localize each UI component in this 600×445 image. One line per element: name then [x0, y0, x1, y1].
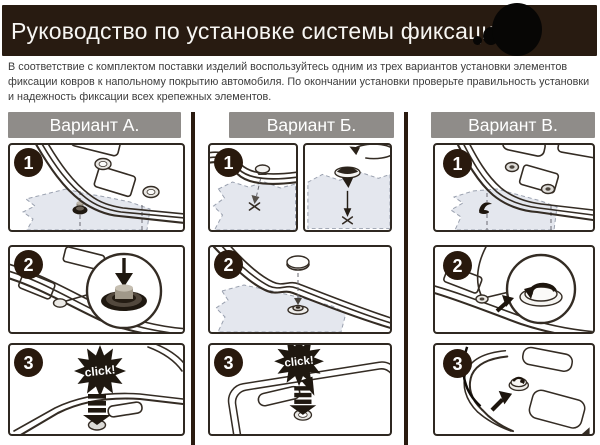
cord-line	[478, 247, 487, 295]
screw-fastener	[256, 165, 270, 175]
variant-a-header: Вариант А.	[8, 112, 181, 138]
panel-c-step-3: 3	[433, 343, 595, 436]
step-badge: 2	[14, 250, 43, 279]
mat-eyelet	[54, 299, 67, 307]
step-badge: 3	[443, 349, 472, 378]
header-bar: Руководство по установке системы фиксаци…	[2, 5, 597, 56]
installed-stud	[288, 305, 308, 314]
corner-mark	[582, 427, 590, 434]
panel-b-step-1-left: 1	[208, 143, 298, 232]
logo-blob	[492, 3, 542, 56]
panel-a-step-3: click! 3	[8, 343, 185, 436]
panel-b-step-3: click! 3	[208, 343, 392, 436]
magnifier-circle	[87, 254, 161, 328]
variant-b-header: Вариант Б.	[229, 112, 394, 138]
page-title: Руководство по установке системы фиксаци…	[11, 5, 508, 56]
step-badge: 1	[214, 148, 243, 177]
panel-c-step-1: 1	[433, 143, 595, 232]
pointer-arrow-icon	[492, 391, 512, 410]
panel-b-step-1-right	[303, 143, 392, 232]
step-badge: 3	[14, 348, 43, 377]
step-badge: 2	[443, 251, 472, 280]
step-badge: 3	[214, 348, 243, 377]
illustration-screw-in	[305, 145, 390, 230]
variant-c-header: Вариант В.	[431, 112, 595, 138]
hook-fastener	[509, 378, 528, 391]
panel-a-step-1: 1	[8, 143, 185, 232]
instruction-sheet: Руководство по установке системы фиксаци…	[0, 0, 600, 445]
step-badge: 2	[214, 250, 243, 279]
rotate-arrow-icon	[349, 145, 390, 159]
cap-fastener	[287, 256, 309, 270]
panel-a-step-2: 2	[8, 245, 185, 334]
panel-b-step-2: 2	[208, 245, 392, 334]
step-badge: 1	[443, 149, 472, 178]
panel-c-step-2: 2	[433, 245, 595, 334]
column-divider-2	[404, 112, 408, 445]
magnifier-circle	[507, 255, 575, 323]
column-divider-1	[191, 112, 195, 445]
logo-dot	[473, 36, 482, 45]
intro-text: В соответствие с комплектом поставки изд…	[8, 60, 596, 106]
step-badge: 1	[14, 148, 43, 177]
carpet-patch	[451, 189, 557, 230]
